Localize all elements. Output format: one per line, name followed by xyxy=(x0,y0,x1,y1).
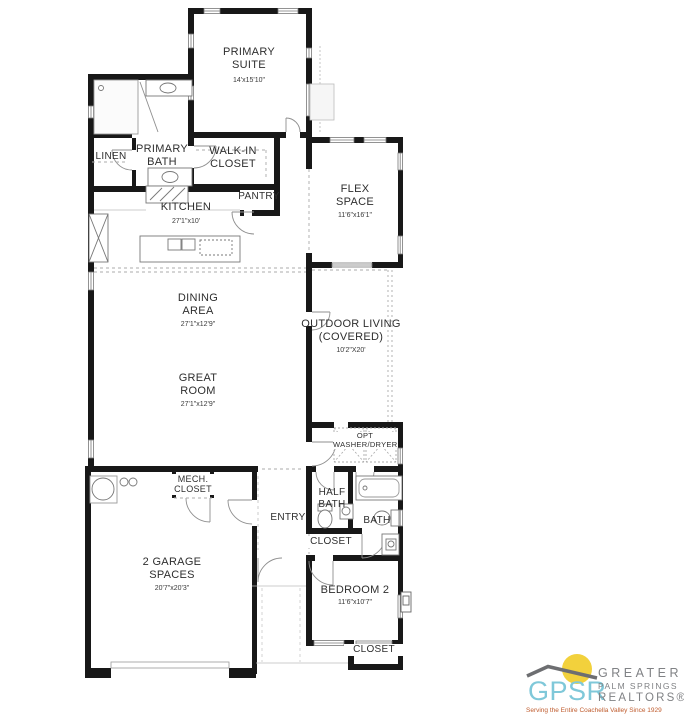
room-label-outdoor-living: OUTDOOR LIVING (COVERED) 10'2"X20' xyxy=(296,318,406,355)
gpsr-logo: GPSR GREATER PALM SPRINGS REALTORS® Serv… xyxy=(522,650,682,718)
logo-tagline: Serving the Entire Coachella Valley Sinc… xyxy=(526,707,682,714)
room-label-kitchen: KITCHEN 27'1"x10' xyxy=(151,201,221,226)
room-label-bedroom-closet: CLOSET xyxy=(344,644,404,656)
room-label-half-bath: HALF BATH xyxy=(310,487,354,510)
logo-org-name: GREATER PALM SPRINGS REALTORS® xyxy=(598,666,684,704)
room-label-walk-in-closet: WALK-IN CLOSET xyxy=(201,145,265,170)
logo-acronym: GPSR xyxy=(528,676,607,707)
room-label-bedroom-2: BEDROOM 2 11'6"x10'7" xyxy=(310,584,400,607)
room-label-primary-suite: PRIMARY SUITE 14'x15'10" xyxy=(209,46,289,85)
room-label-bath: BATH xyxy=(347,515,407,527)
room-label-hall-closet: CLOSET xyxy=(301,536,361,548)
room-label-mech-closet: MECH. CLOSET xyxy=(169,474,217,495)
floorplan-image: PRIMARY SUITE 14'x15'10" LINEN PRIMARY B… xyxy=(0,0,684,720)
room-label-opt-washer-dryer: OPT WASHER/DRYER xyxy=(333,432,397,449)
room-label-great-room: GREAT ROOM 27'1"x12'9" xyxy=(171,372,225,409)
room-label-garage: 2 GARAGE SPACES 20'7"x20'3" xyxy=(127,556,217,593)
room-label-flex-space: FLEX SPACE 11'6"x16'1" xyxy=(328,183,382,220)
room-label-primary-bath: PRIMARY BATH xyxy=(127,143,197,168)
room-label-pantry: PANTRY xyxy=(231,191,287,203)
floorplan-drawing xyxy=(0,0,684,720)
room-label-dining-area: DINING AREA 27'1"x12'9" xyxy=(171,292,225,329)
room-label-entry: ENTRY xyxy=(258,512,318,524)
